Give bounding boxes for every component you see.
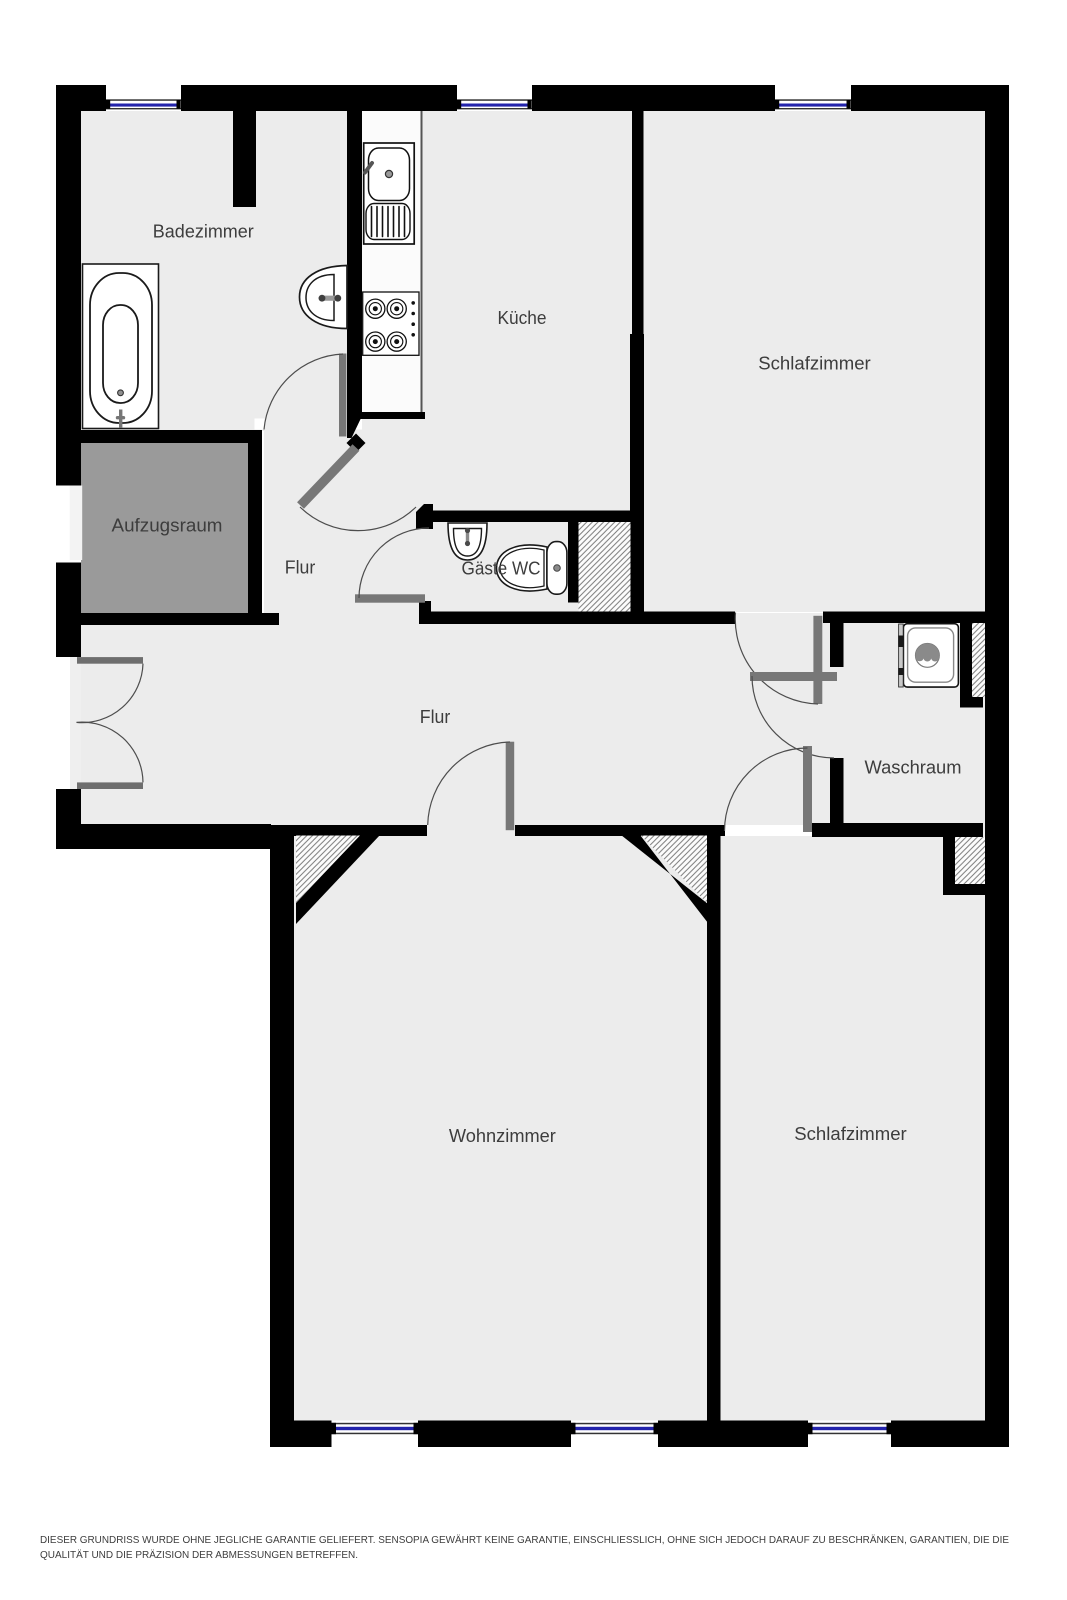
- svg-text:Flur: Flur: [285, 558, 316, 578]
- svg-text:Aufzugsraum: Aufzugsraum: [112, 516, 223, 536]
- svg-text:QUALITÄT UND DIE PRÄZISION DER: QUALITÄT UND DIE PRÄZISION DER ABMESSUNG…: [40, 1549, 358, 1561]
- svg-text:Waschraum: Waschraum: [865, 758, 962, 778]
- svg-text:Schlafzimmer: Schlafzimmer: [758, 354, 871, 374]
- svg-text:Gäste WC: Gäste WC: [462, 559, 541, 579]
- svg-text:Badezimmer: Badezimmer: [153, 222, 254, 242]
- svg-text:Küche: Küche: [498, 308, 547, 328]
- svg-text:DIESER GRUNDRISS WURDE OHNE JE: DIESER GRUNDRISS WURDE OHNE JEGLICHE GAR…: [40, 1534, 1009, 1546]
- svg-text:Flur: Flur: [420, 707, 451, 727]
- svg-text:Wohnzimmer: Wohnzimmer: [449, 1126, 556, 1146]
- svg-text:Schlafzimmer: Schlafzimmer: [794, 1124, 907, 1144]
